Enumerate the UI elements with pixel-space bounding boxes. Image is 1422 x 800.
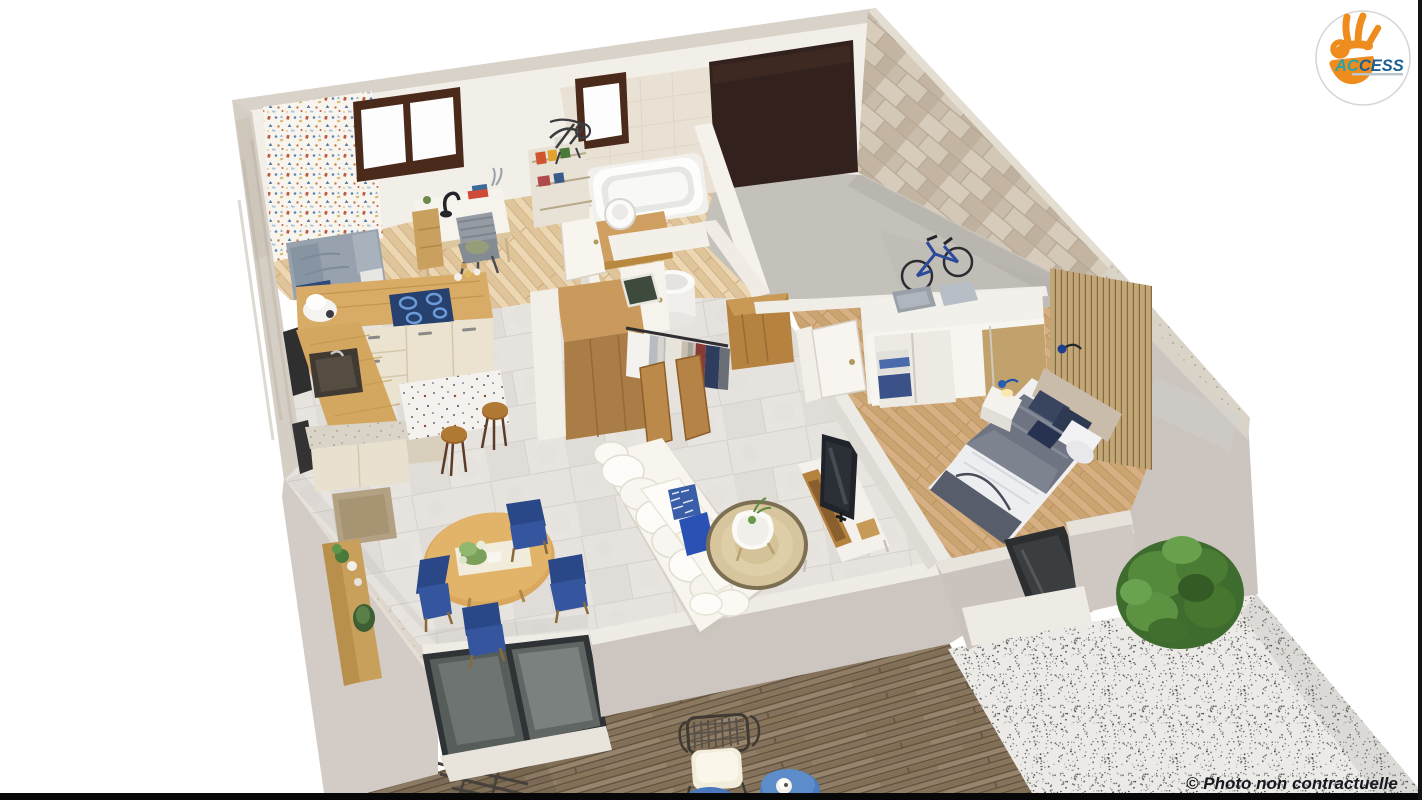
svg-text:© Photo non contractuelle: © Photo non contractuelle xyxy=(1186,774,1398,793)
svg-text:ACCESS: ACCESS xyxy=(1334,57,1404,75)
